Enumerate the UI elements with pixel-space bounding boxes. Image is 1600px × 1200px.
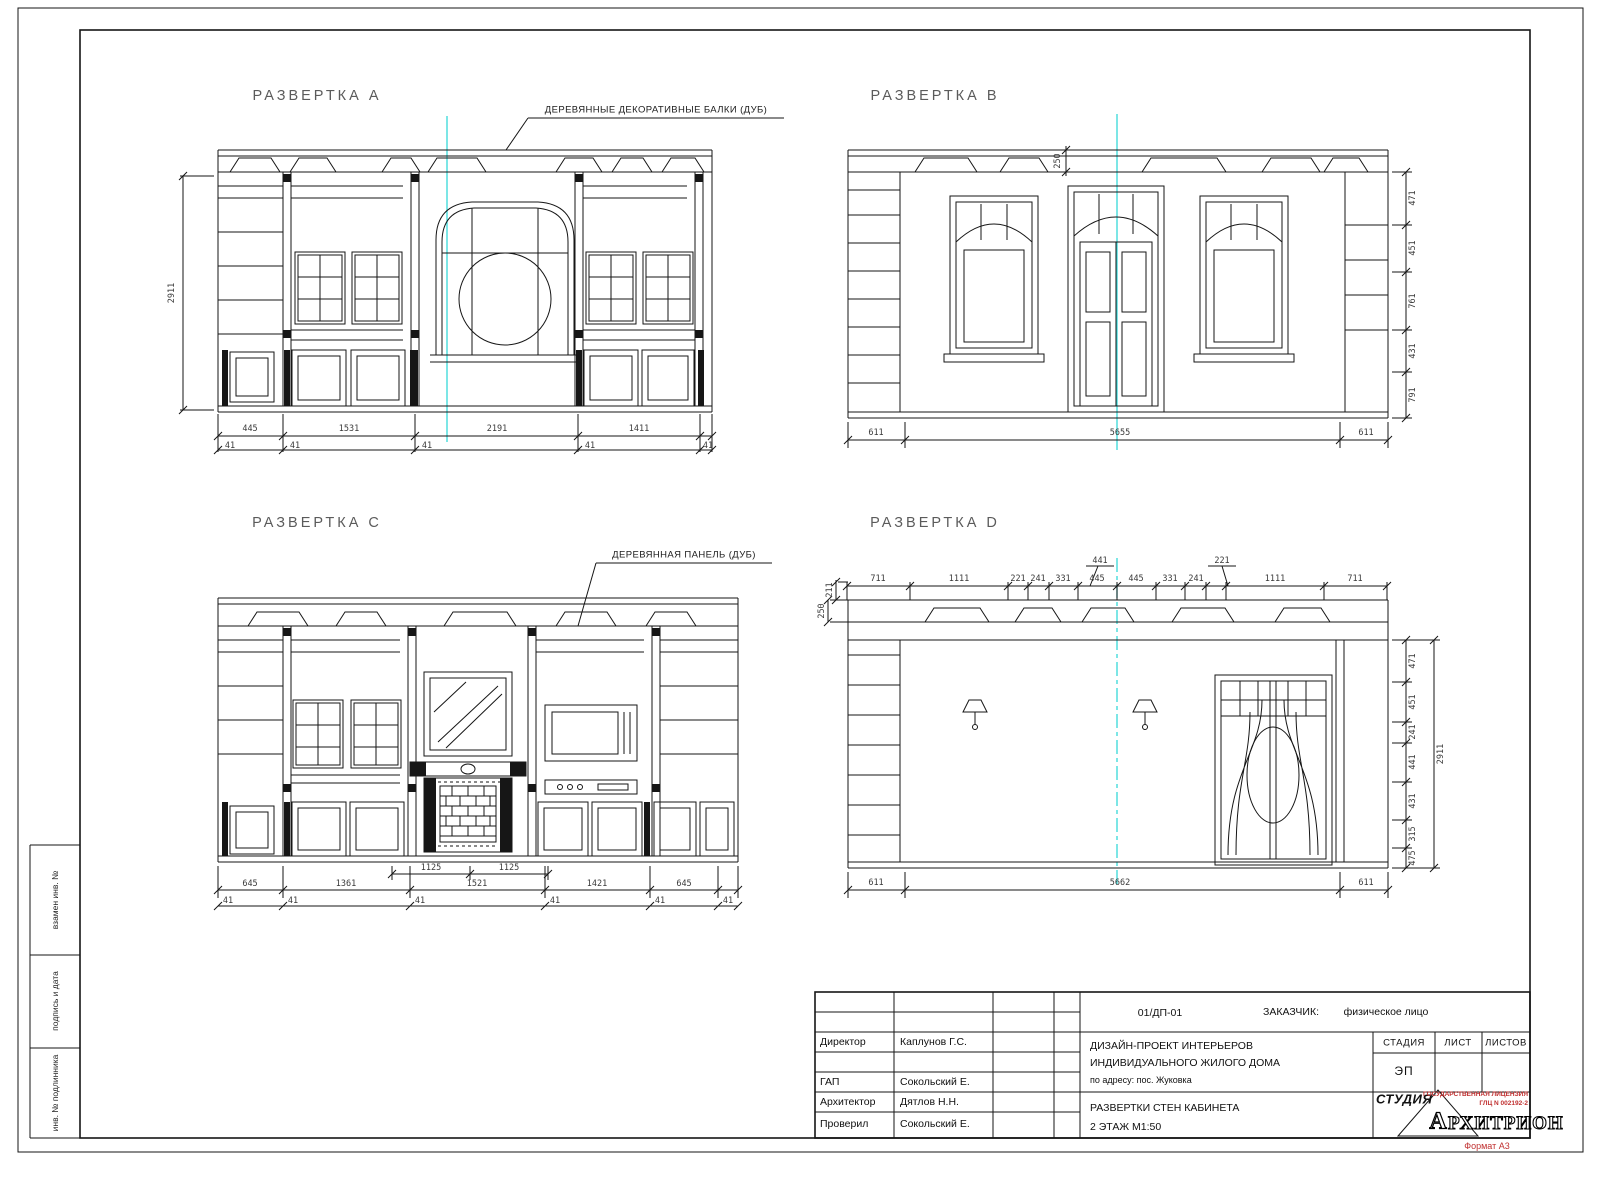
dim-label-d-24: 5662 xyxy=(1110,878,1130,888)
panel-callout-label: ДЕРЕВЯННАЯ ПАНЕЛЬ (ДУБ) xyxy=(612,550,756,561)
dim-label-b-0: 250 xyxy=(1053,153,1063,168)
dim-label-c-0: 1125 xyxy=(421,863,441,873)
project-line-1: ДИЗАЙН-ПРОЕКТ ИНТЕРЬЕРОВ xyxy=(1090,1040,1253,1052)
dim-label-d-7: 445 xyxy=(1089,574,1104,584)
dim-label-c-10: 41 xyxy=(550,896,560,906)
dim-label-d-2: 711 xyxy=(870,574,885,584)
margin-label-2: подпись и дата xyxy=(50,971,60,1031)
dim-label-d-5: 241 xyxy=(1030,574,1045,584)
role-gap: ГАП xyxy=(820,1076,839,1088)
dim-label-d-4: 221 xyxy=(1010,574,1025,584)
margin-label-3: инв. № подлинника xyxy=(50,1055,60,1132)
format-label: Формат А3 xyxy=(1464,1141,1509,1151)
name-architect: Дятлов Н.Н. xyxy=(900,1096,959,1108)
elevation-c-title: РАЗВЕРТКА C xyxy=(252,515,382,531)
dim-label-d-3: 1111 xyxy=(949,574,969,584)
dim-label-d-8: 441 xyxy=(1092,556,1107,566)
dim-label-c-8: 41 xyxy=(288,896,298,906)
dim-label-a-2: 1531 xyxy=(339,424,359,434)
project-line-3: по адресу: пос. Жуковка xyxy=(1090,1075,1192,1085)
customer-label: ЗАКАЗЧИК: xyxy=(1263,1006,1319,1018)
dim-label-d-0: 211 xyxy=(825,582,835,597)
dim-label-b-7: 5655 xyxy=(1110,428,1130,438)
dim-label-c-9: 41 xyxy=(415,896,425,906)
dim-label-c-1: 1125 xyxy=(499,863,519,873)
dim-label-c-2: 645 xyxy=(242,879,257,889)
role-checker: Проверил xyxy=(820,1118,868,1130)
stage-label: СТАДИЯ xyxy=(1383,1038,1425,1049)
dim-label-a-3: 2191 xyxy=(487,424,507,434)
dim-label-d-11: 241 xyxy=(1188,574,1203,584)
dim-label-b-5: 791 xyxy=(1408,387,1418,402)
beams-callout-label: ДЕРЕВЯННЫЕ ДЕКОРАТИВНЫЕ БАЛКИ (ДУБ) xyxy=(545,105,767,116)
dim-label-d-14: 711 xyxy=(1347,574,1362,584)
role-architect: Архитектор xyxy=(820,1096,875,1108)
dim-label-b-3: 761 xyxy=(1408,293,1418,308)
dim-label-d-23: 611 xyxy=(868,878,883,888)
dim-label-a-1: 445 xyxy=(242,424,257,434)
dim-label-c-11: 41 xyxy=(655,896,665,906)
dim-label-d-6: 331 xyxy=(1055,574,1070,584)
license-line-1: ГОСУДАРСТВЕННАЯ ЛИЦЕНЗИЯ xyxy=(1423,1091,1528,1099)
dim-label-d-9: 445 xyxy=(1128,574,1143,584)
dim-label-d-12: 221 xyxy=(1214,556,1229,566)
dim-label-d-22: 2911 xyxy=(1436,744,1446,764)
dim-label-d-25: 611 xyxy=(1358,878,1373,888)
elevation-b-linework xyxy=(844,114,1412,450)
dim-label-a-8: 41 xyxy=(585,441,595,451)
role-director: Директор xyxy=(820,1036,866,1048)
logo-text: РХИТРИОН xyxy=(1448,1113,1564,1135)
elevation-c-linework xyxy=(214,563,772,910)
dim-label-d-10: 331 xyxy=(1162,574,1177,584)
drawing-sheet: РАЗВЕРТКА A РАЗВЕРТКА B РАЗВЕРТКА C РАЗВ… xyxy=(0,0,1600,1200)
dim-label-a-7: 41 xyxy=(422,441,432,451)
dim-label-d-19: 431 xyxy=(1408,793,1418,808)
dim-label-a-5: 41 xyxy=(225,441,235,451)
dim-label-d-16: 451 xyxy=(1408,694,1418,709)
elevation-d-title: РАЗВЕРТКА D xyxy=(870,515,1000,531)
dim-label-d-15: 471 xyxy=(1408,653,1418,668)
dim-label-a-9: 41 xyxy=(703,441,713,451)
dim-label-a-4: 1411 xyxy=(629,424,649,434)
dim-label-b-8: 611 xyxy=(1358,428,1373,438)
dim-label-d-17: 241 xyxy=(1408,724,1418,739)
dim-label-d-1: 250 xyxy=(817,603,827,618)
project-line-2: ИНДИВИДУАЛЬНОГО ЖИЛОГО ДОМА xyxy=(1090,1057,1280,1069)
name-checker: Сокольский Е. xyxy=(900,1118,970,1130)
sheet-linework xyxy=(0,0,1600,1200)
dim-label-c-4: 1521 xyxy=(467,879,487,889)
margin-label-1: взамен инв. № xyxy=(50,871,60,929)
dim-label-c-3: 1361 xyxy=(336,879,356,889)
dim-label-d-20: 315 xyxy=(1408,826,1418,841)
dim-label-c-6: 645 xyxy=(676,879,691,889)
dim-label-b-1: 471 xyxy=(1408,190,1418,205)
dim-label-b-4: 431 xyxy=(1408,343,1418,358)
elevation-d-linework xyxy=(824,558,1440,898)
customer-value: физическое лицо xyxy=(1344,1006,1429,1018)
sheets-label: ЛИСТОВ xyxy=(1485,1038,1527,1049)
sheet-title-line-1: РАЗВЕРТКИ СТЕН КАБИНЕТА xyxy=(1090,1102,1239,1114)
dim-label-c-7: 41 xyxy=(223,896,233,906)
dim-label-d-18: 441 xyxy=(1408,754,1418,769)
sheet-label: ЛИСТ xyxy=(1444,1038,1471,1049)
name-gap: Сокольский Е. xyxy=(900,1076,970,1088)
logo-letter: А xyxy=(1429,1109,1446,1136)
dim-label-a-0: 2911 xyxy=(167,283,177,303)
elevation-a-linework xyxy=(179,116,784,454)
name-director: Каплунов Г.С. xyxy=(900,1036,967,1048)
dim-label-d-13: 1111 xyxy=(1265,574,1285,584)
stage-value: ЭП xyxy=(1394,1064,1413,1078)
dim-label-d-21: 475 xyxy=(1408,850,1418,865)
doc-number: 01/ДП-01 xyxy=(1138,1007,1182,1019)
dim-label-a-6: 41 xyxy=(290,441,300,451)
dim-label-c-5: 1421 xyxy=(587,879,607,889)
sheet-title-line-2: 2 ЭТАЖ М1:50 xyxy=(1090,1121,1161,1133)
license-line-2: ГЛЦ N 002192-2 xyxy=(1479,1100,1528,1108)
dim-label-c-12: 41 xyxy=(723,896,733,906)
dim-label-b-6: 611 xyxy=(868,428,883,438)
elevation-b-title: РАЗВЕРТКА B xyxy=(870,88,999,104)
dim-label-b-2: 451 xyxy=(1408,240,1418,255)
elevation-a-title: РАЗВЕРТКА A xyxy=(252,88,381,104)
